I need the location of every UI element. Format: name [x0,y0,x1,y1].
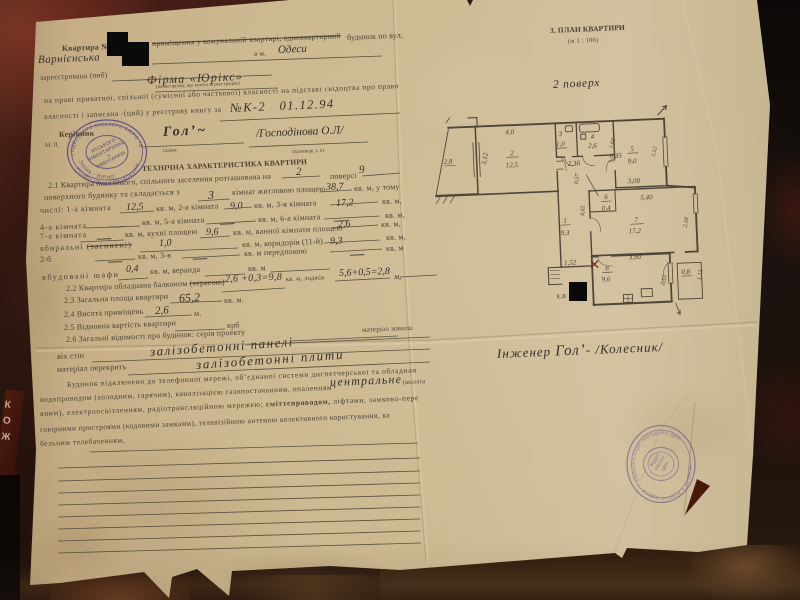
svg-text:0,4: 0,4 [602,204,612,212]
svg-text:7: 7 [634,216,638,224]
svg-text:2,18: 2,18 [683,217,691,228]
svg-text:2,53: 2,53 [660,275,669,287]
svg-text:1,68: 1,68 [608,138,617,150]
svg-text:1,13: 1,13 [697,269,705,280]
svg-text:5: 5 [630,145,634,153]
svg-text:6: 6 [604,193,608,201]
svg-text:ВІДДІЛА и КОМУНІ ОДЕСА: ВІДДІЛА и КОМУНІ ОДЕСА [638,465,701,509]
svg-text:9,3: 9,3 [561,229,571,237]
svg-text:2: 2 [510,149,514,157]
svg-text:9,6: 9,6 [602,275,612,283]
svg-text:3: 3 [557,130,562,138]
svg-text:2,8: 2,8 [443,158,453,166]
svg-text:5,40: 5,40 [640,193,653,202]
svg-text:3,12: 3,12 [480,152,490,167]
svg-text:2,36: 2,36 [568,159,581,168]
svg-text:0,35: 0,35 [609,152,622,161]
svg-text:1,12: 1,12 [651,146,659,158]
svg-text:1,52: 1,52 [564,259,577,268]
svg-text:0,8: 0,8 [681,268,691,276]
svg-text:12,5: 12,5 [506,161,519,170]
svg-text:0,57: 0,57 [574,172,581,184]
svg-text:4,0: 4,0 [505,128,515,136]
svg-text:1: 1 [563,217,567,225]
svg-text:2,6: 2,6 [588,142,598,150]
svg-text:4: 4 [591,133,595,141]
svg-text:9,0: 9,0 [628,157,638,165]
svg-text:4,65: 4,65 [579,205,587,216]
svg-text:17,2: 17,2 [629,227,642,236]
svg-text:8: 8 [605,264,609,272]
svg-text:3,08: 3,08 [626,177,640,186]
svg-text:К.В: К.В [555,294,566,300]
svg-text:1,0: 1,0 [556,140,566,148]
svg-text:3,90: 3,90 [628,253,642,262]
